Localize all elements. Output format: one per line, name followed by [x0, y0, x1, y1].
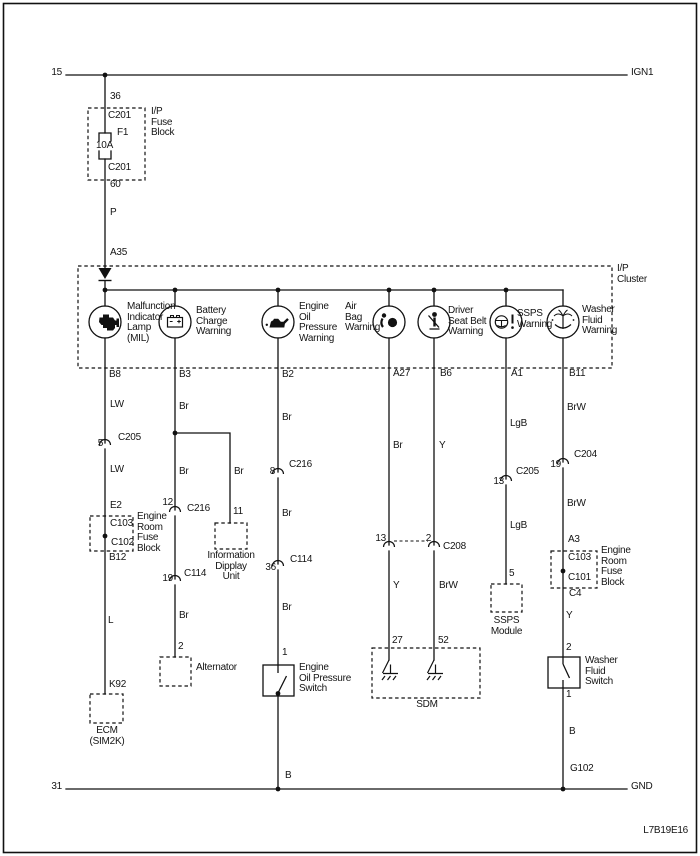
- fuse-conn-top-label: C201: [108, 111, 131, 122]
- engine-room-fuse-block-label: Engine Room Fuse Block: [137, 512, 167, 554]
- wire-label: Br: [393, 441, 403, 452]
- connector-name-label: C114: [184, 569, 206, 580]
- connector-symbols: [100, 440, 569, 581]
- junction-dot: [387, 288, 392, 293]
- wire-label: BrW: [439, 581, 458, 592]
- terminal-15-label: 15: [44, 68, 62, 79]
- cluster-pin-in-label: A35: [110, 248, 127, 259]
- junction-dot: [103, 534, 108, 539]
- junction-dot: [504, 288, 509, 293]
- wire-label: Y: [393, 581, 399, 592]
- fuse-conn-bottom-label: C201: [108, 163, 131, 174]
- junction-dot: [561, 569, 566, 574]
- pin-a1-label: A1: [511, 369, 523, 380]
- seat-belt-icon: [429, 312, 440, 329]
- wire-label: BrW: [567, 403, 586, 414]
- wire-label: LW: [110, 465, 124, 476]
- steering-wheel-icon: [495, 316, 507, 328]
- pin-a27-label: A27: [393, 369, 410, 380]
- connector-pin-label: 13: [374, 534, 386, 545]
- ip-cluster-label: I/P Cluster: [617, 264, 647, 285]
- junction-dot: [276, 288, 281, 293]
- wire-label: Br: [234, 467, 244, 478]
- wire-label: Br: [282, 509, 292, 520]
- wire-label: Br: [179, 467, 189, 478]
- junction-dot: [103, 73, 108, 78]
- terminal-31-label: 31: [44, 782, 62, 793]
- pin-1-label: 1: [566, 690, 571, 701]
- wire-label: BrW: [567, 499, 586, 510]
- fuse-rating-label: 10A: [96, 141, 113, 152]
- oil-pressure-switch-symbol: [278, 665, 287, 693]
- junction-dot: [103, 288, 108, 293]
- washer-fluid-switch-symbol: [563, 657, 570, 688]
- pin-b2-label: B2: [282, 370, 294, 381]
- airbag-icon: [381, 313, 397, 327]
- pin-c4-label: C4: [569, 589, 581, 600]
- washer-fluid-switch-label: Washer Fluid Switch: [585, 656, 618, 688]
- sdm-ground-switch: [382, 660, 398, 680]
- pin-2-label: 2: [178, 642, 183, 653]
- engine-room-fuse-block-label: Engine Room Fuse Block: [601, 546, 631, 588]
- pin-27-label: 27: [392, 636, 403, 647]
- junction-dot: [432, 288, 437, 293]
- connector-pin-label: 12: [161, 498, 173, 509]
- lamp-label-airbag: Air Bag Warning: [345, 302, 380, 334]
- diode-symbol: [99, 268, 112, 281]
- sdm-ground-switch: [427, 660, 443, 680]
- pin-11-label: 11: [233, 507, 243, 518]
- conn-c101-label: C101: [568, 573, 591, 584]
- wire-label: Y: [439, 441, 445, 452]
- wire-label: Br: [282, 603, 292, 614]
- lamp-label-ssps: SSPS Warning: [517, 309, 552, 330]
- sdm-internals: [382, 660, 443, 680]
- ground-point-label: G102: [570, 764, 593, 775]
- pin-1-label: 1: [282, 648, 287, 659]
- connector-name-label: C205: [516, 467, 539, 478]
- connector-pin-label: 36: [262, 563, 276, 574]
- connector-name-label: C216: [289, 460, 312, 471]
- pin-2-label: 2: [566, 643, 571, 654]
- pin-b8-label: B8: [109, 370, 121, 381]
- washer-spray-icon: [552, 310, 575, 329]
- wire-label: LgB: [510, 521, 527, 532]
- oil-can-icon: [266, 318, 289, 327]
- junction-dot: [173, 288, 178, 293]
- gnd-label: GND: [631, 782, 652, 793]
- connector-pin-label: 2: [422, 534, 431, 545]
- ssps-module-box: [491, 584, 522, 612]
- connector-pin-label: 13: [491, 477, 504, 488]
- junction-dot: [561, 787, 566, 792]
- alternator-label: Alternator: [196, 663, 237, 674]
- lamp-label-seatbelt: Driver Seat Belt Warning: [448, 306, 486, 338]
- pin-b6-label: B6: [440, 369, 452, 380]
- lamp-label-mil: Malfunction Indicator Lamp (MIL): [127, 302, 175, 344]
- junction-dot: [276, 691, 281, 696]
- connector-name-label: C114: [290, 555, 312, 566]
- connector-pin-label: 8: [265, 467, 275, 478]
- wire-label: L: [108, 616, 113, 627]
- connector-name-label: C205: [118, 433, 141, 444]
- engine-icon: [99, 315, 119, 331]
- pin-b11-label: B11: [569, 369, 585, 380]
- diagram-code-label: L7B19E16: [600, 826, 688, 837]
- pin-b3-label: B3: [179, 370, 191, 381]
- wire-p-label: P: [110, 208, 116, 219]
- ecm-label: ECM (SIM2K): [84, 726, 130, 747]
- conn-c102-label: C102: [111, 538, 134, 549]
- wire-label: B: [569, 727, 575, 738]
- wire-label: LgB: [510, 419, 527, 430]
- wiring-diagram: 15 IGN1 31 GND G102 36 C201 F1 10A C201 …: [0, 0, 700, 856]
- pin-b12-label: B12: [109, 553, 126, 564]
- connector-pin-label: 19: [548, 460, 561, 471]
- lamp-label-battery: Battery Charge Warning: [196, 306, 231, 338]
- pin-k92-label: K92: [109, 680, 126, 691]
- wire-label: Br: [179, 402, 189, 413]
- junction-dot: [173, 431, 178, 436]
- fuse-pin-bottom-label: 60: [110, 180, 121, 191]
- pin-52-label: 52: [438, 636, 449, 647]
- lamp-label-washer: Washer Fluid Warning: [582, 305, 617, 337]
- pin-a3-label: A3: [568, 535, 580, 546]
- ign1-label: IGN1: [631, 68, 653, 79]
- wire-label: B: [285, 771, 291, 782]
- wire-label: LW: [110, 400, 124, 411]
- information-display-label: Information Dipplay Unit: [202, 551, 260, 583]
- wire-label: Br: [179, 611, 189, 622]
- connector-name-label: C208: [443, 542, 466, 553]
- junction-dot: [276, 787, 281, 792]
- conn-c103-label: C103: [110, 519, 133, 530]
- washer-fluid-switch-box: [548, 657, 580, 688]
- lamp-label-oil: Engine Oil Pressure Warning: [299, 302, 337, 344]
- connector-pin-label: 19: [161, 574, 173, 585]
- pin-e2-label: E2: [110, 501, 122, 512]
- connector-name-label: C204: [574, 450, 597, 461]
- fuse-id-label: F1: [117, 128, 128, 139]
- conn-c103-label: C103: [568, 553, 591, 564]
- ip-fuse-block-label: I/P Fuse Block: [151, 107, 174, 139]
- ssps-module-label: SSPS Module: [483, 616, 530, 637]
- alternator-box: [160, 657, 191, 686]
- pin-5-label: 5: [509, 569, 514, 580]
- connector-pin-label: 5: [93, 439, 103, 450]
- wire-label: Br: [282, 413, 292, 424]
- fuse-pin-top-label: 36: [110, 92, 121, 103]
- connector-name-label: C216: [187, 504, 210, 515]
- exclamation-icon: [511, 315, 514, 329]
- oil-pressure-switch-label: Engine Oil Pressure Switch: [299, 663, 351, 695]
- ecm-box: [90, 694, 123, 723]
- information-display-box: [215, 523, 247, 549]
- wire-label: Y: [566, 611, 572, 622]
- sdm-label: SDM: [404, 700, 450, 711]
